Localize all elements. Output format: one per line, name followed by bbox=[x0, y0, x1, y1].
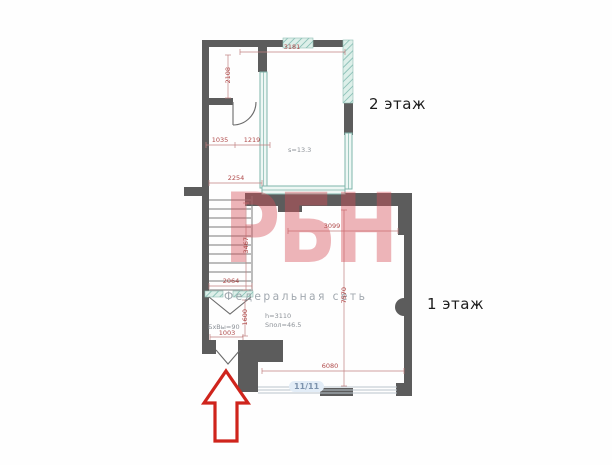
wall-storefront-pier bbox=[320, 388, 353, 396]
hatch-vestibule-left bbox=[205, 291, 223, 297]
dimension-label-top-width: 3181 bbox=[272, 44, 312, 51]
wall-entrance-corner bbox=[238, 340, 283, 362]
watermark-logo: РБН bbox=[224, 181, 396, 277]
wall-right-2f bbox=[344, 100, 353, 135]
wall-left-outer bbox=[202, 40, 209, 352]
unit-number-badge: 11/11 bbox=[289, 381, 324, 392]
annotation-hall-area: Sпол=46.5 bbox=[265, 322, 301, 329]
wall-1f-right bbox=[404, 235, 412, 390]
dimension-label-hall-bottom-width: 6080 bbox=[310, 363, 350, 370]
annotation-hall-height: h=3110 bbox=[265, 313, 291, 320]
hatch-right-segment bbox=[343, 40, 353, 103]
dimension-label-wc-opening: 1219 bbox=[237, 137, 267, 144]
dimension-label-entrance-opening: 1003 bbox=[212, 330, 242, 337]
door-entrance-double bbox=[216, 350, 240, 364]
wall-1f-bottom-corner bbox=[396, 383, 412, 396]
wall-1f-right-upper bbox=[398, 193, 412, 235]
wall-wc bbox=[202, 98, 233, 105]
dimension-label-stair-flight: 3467 bbox=[243, 230, 250, 260]
dimension-label-vestibule-depth: 1600 bbox=[242, 302, 249, 332]
dimension-label-hall-top-width: 3099 bbox=[312, 223, 352, 230]
dimension-label-stair-width: 2064 bbox=[212, 278, 250, 285]
wall-left-tab bbox=[184, 187, 203, 196]
wall-interior-2f bbox=[258, 43, 267, 72]
door-wc-swing bbox=[233, 102, 256, 125]
dimension-label-upper-room-height: 2108 bbox=[225, 60, 232, 90]
wall-entrance-pier bbox=[238, 362, 258, 392]
floor-label-first: 1 этаж bbox=[427, 295, 484, 313]
wall-entrance-left bbox=[202, 340, 216, 354]
dimension-label-corridor-width: 2254 bbox=[216, 175, 256, 182]
annotation-room2f-area: s=13.3 bbox=[288, 147, 311, 154]
dimension-label-hall-depth: 7570 bbox=[341, 280, 348, 310]
dimension-label-wc-width: 1035 bbox=[206, 137, 234, 144]
wall-column-bump bbox=[395, 298, 404, 316]
floorplan-canvas: РБН Федеральная сеть 2 этаж 1 этаж 11/11… bbox=[0, 0, 612, 465]
floor-label-second: 2 этаж bbox=[369, 95, 426, 113]
